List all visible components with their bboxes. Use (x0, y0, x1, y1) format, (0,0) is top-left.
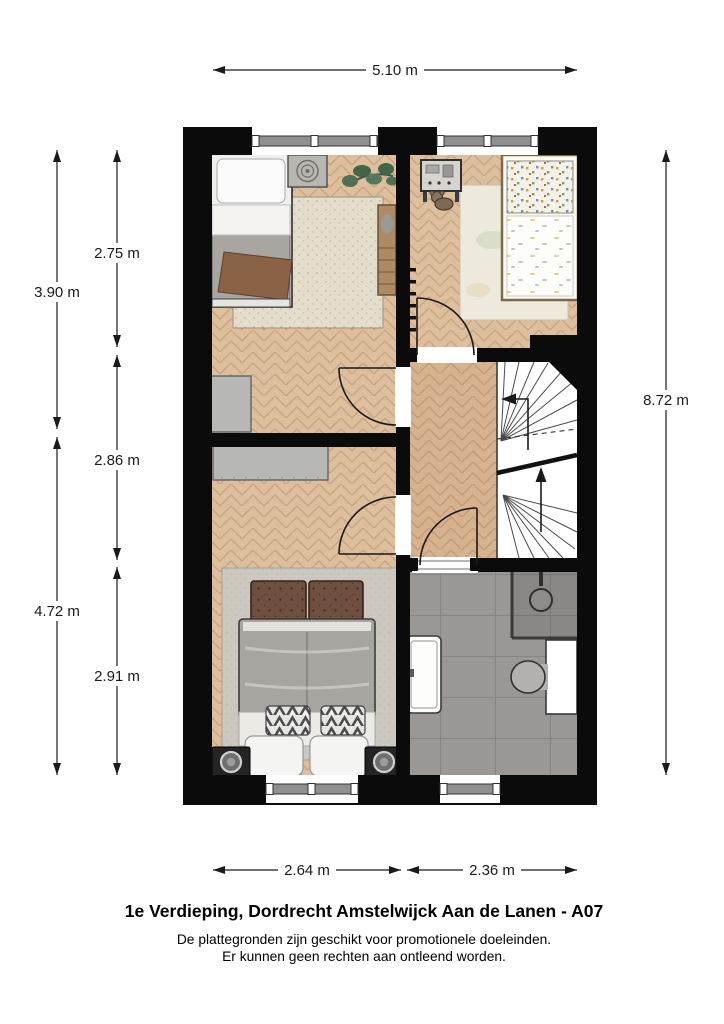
floor-plan: 5.10 m 3.90 m 4.72 m 2.75 m (0, 0, 724, 1024)
dim-left-lower: 4.72 m (28, 437, 86, 775)
wall-between-bedrooms (212, 433, 396, 447)
wall-art-target (288, 155, 327, 187)
nightstand-speaker-left (212, 747, 250, 777)
childrens-bed (502, 155, 578, 300)
room-landing-floor (410, 362, 497, 558)
dim-room-top: 2.75 m (88, 150, 146, 347)
wall-stairwell-notch (530, 335, 577, 349)
disclaimer-line-2: Er kunnen geen rechten aan ontleend word… (222, 949, 506, 964)
dim-label-room-top: 2.75 m (94, 245, 140, 262)
dim-label-room-bottom: 2.91 m (94, 668, 140, 685)
window-master-bedroom-south (266, 775, 358, 803)
opening-bedroom-1 (395, 367, 411, 427)
window-childrens-room-north (437, 127, 538, 155)
floorplan-page: 5.10 m 3.90 m 4.72 m 2.75 m (0, 0, 724, 1024)
shower (512, 568, 577, 638)
dim-label-left-upper: 3.90 m (34, 284, 80, 301)
dim-room-middle: 2.86 m (88, 355, 146, 560)
shower-head-icon (530, 589, 552, 611)
dim-label-right-total: 8.72 m (643, 392, 689, 409)
dim-label-top: 5.10 m (372, 62, 418, 79)
opening-childrens-room (417, 347, 477, 363)
dim-label-left-lower: 4.72 m (34, 603, 80, 620)
bookshelf (378, 205, 396, 295)
dim-right-total: 8.72 m (637, 150, 695, 775)
dim-room-bottom: 2.91 m (88, 567, 146, 775)
dim-bottom-left: 2.64 m (213, 860, 401, 880)
wall-left (183, 127, 212, 805)
window-bedroom-1-north (252, 127, 378, 155)
wall-bottom (183, 775, 597, 805)
dim-label-bottom-left: 2.64 m (284, 862, 330, 879)
title-block: 1e Verdieping, Dordrecht Amstelwijck Aan… (125, 901, 603, 964)
page-title: 1e Verdieping, Dordrecht Amstelwijck Aan… (125, 901, 603, 921)
single-bed (210, 151, 292, 307)
opening-master-bedroom (395, 495, 411, 555)
dim-label-room-middle: 2.86 m (94, 452, 140, 469)
disclaimer-line-1: De plattegronden zijn geschikt voor prom… (177, 932, 551, 947)
wall-right (577, 127, 597, 805)
dim-label-bottom-right: 2.36 m (469, 862, 515, 879)
dim-bottom-right: 2.36 m (407, 860, 577, 880)
wall-center-vertical (396, 155, 410, 775)
dim-left-upper: 3.90 m (28, 150, 86, 429)
window-bathroom-south (440, 775, 500, 803)
dresser (211, 376, 251, 432)
opening-bathroom (412, 557, 478, 573)
washbasin (405, 636, 441, 713)
dim-top-width: 5.10 m (213, 60, 577, 80)
